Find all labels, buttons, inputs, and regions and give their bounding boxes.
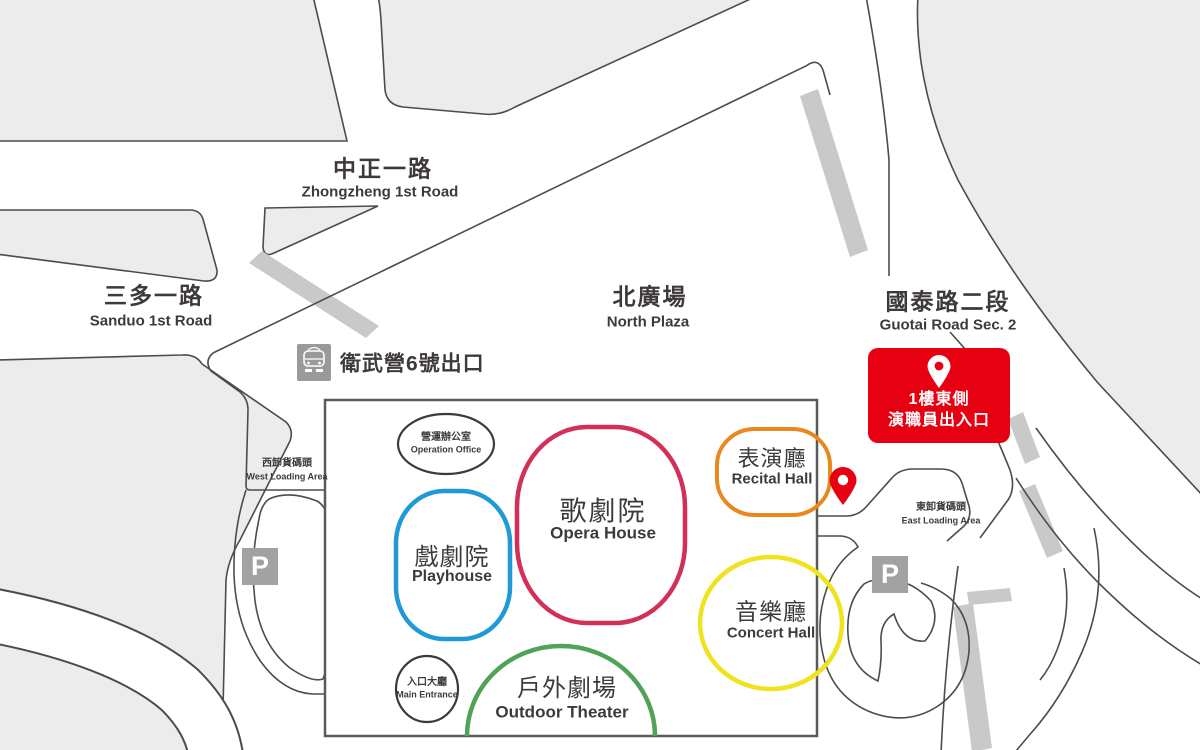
road-label-sanduo-zh: 三多一路	[104, 285, 204, 308]
recital-hall-label-zh: 表演廳	[737, 448, 806, 470]
parking-icon-west[interactable]: P	[242, 548, 278, 585]
badge-line1: 1樓東側	[909, 389, 970, 410]
edge-road-fork-1	[1012, 528, 1099, 750]
west-loop-island	[253, 495, 331, 680]
block-island-small	[263, 206, 378, 255]
stripe-guotai-2	[1019, 484, 1063, 558]
weiwuying-site-map: 中正一路 Zhongzheng 1st Road 三多一路 Sanduo 1st…	[0, 0, 1200, 750]
operation-office-label-zh: 營運辦公室	[421, 433, 471, 443]
road-label-guotai-zh: 國泰路二段	[886, 291, 1011, 314]
edge-road-fork-2	[1040, 568, 1067, 680]
east-loading-label-en: East Loading Area	[902, 517, 981, 526]
mrt-exit-icon[interactable]	[297, 344, 331, 381]
road-label-guotai-en: Guotai Road Sec. 2	[880, 318, 1017, 333]
edge-guotai-west-upper	[866, 0, 889, 276]
stripe-guotai-1	[1008, 412, 1040, 464]
opera-house-label-en: Opera House	[550, 525, 656, 542]
block-left-strip	[0, 210, 217, 281]
block-top-left	[0, 0, 347, 141]
staff-entrance-badge[interactable]: 1樓東側 演職員出入口	[868, 348, 1010, 443]
operation-office-label-en: Operation Office	[411, 446, 482, 455]
recital-hall-label-en: Recital Hall	[732, 472, 813, 487]
outdoor-theater-label-en: Outdoor Theater	[495, 704, 628, 721]
block-top-middle	[372, 0, 757, 114]
road-label-zhongzheng-zh: 中正一路	[333, 158, 433, 181]
parking-icon-east[interactable]: P	[872, 556, 908, 593]
mrt-exit-label: 衛武營6號出口	[340, 354, 485, 375]
area-label-north-plaza-zh: 北廣場	[613, 286, 688, 309]
concert-hall-label-zh: 音樂廳	[735, 601, 807, 624]
west-loading-label-en: West Loading Area	[246, 473, 327, 482]
opera-house-label-zh: 歌劇院	[560, 499, 647, 526]
stripe-mrt-platform	[800, 89, 868, 257]
playhouse-label-zh: 戲劇院	[415, 546, 490, 570]
road-label-zhongzheng-en: Zhongzheng 1st Road	[302, 185, 459, 200]
road-label-sanduo-en: Sanduo 1st Road	[90, 314, 213, 329]
east-entrance-pin-icon[interactable]	[830, 467, 857, 505]
east-loading-label-zh: 東卸貨碼頭	[916, 503, 966, 513]
playhouse-label-en: Playhouse	[412, 569, 492, 585]
area-label-north-plaza-en: North Plaza	[607, 315, 690, 330]
east-loop-island	[848, 579, 935, 681]
main-entrance-label-en: Main Entrance	[396, 691, 458, 700]
map-canvas	[0, 0, 1200, 750]
stripe-guotai-3	[967, 588, 1012, 605]
badge-line2: 演職員出入口	[888, 410, 990, 431]
badge-pin-icon	[926, 355, 952, 389]
concert-hall-label-en: Concert Hall	[727, 626, 815, 641]
main-entrance-label-zh: 入口大廳	[407, 678, 447, 688]
stripe-sanduo	[249, 251, 379, 338]
west-loading-label-zh: 西卸貨碼頭	[262, 459, 312, 469]
stripe-guotai-4	[953, 603, 992, 750]
outdoor-theater-label-zh: 戶外劇場	[517, 677, 617, 701]
